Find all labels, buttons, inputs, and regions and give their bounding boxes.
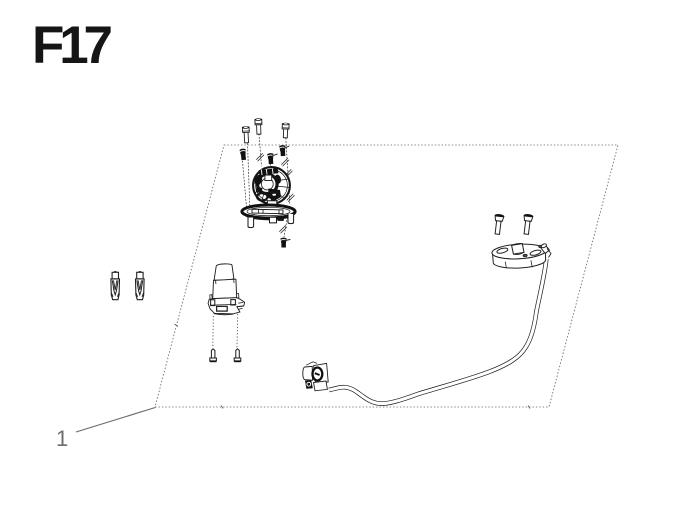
svg-text:F17: F17 (32, 16, 113, 75)
svg-text:1: 1 (56, 426, 68, 451)
